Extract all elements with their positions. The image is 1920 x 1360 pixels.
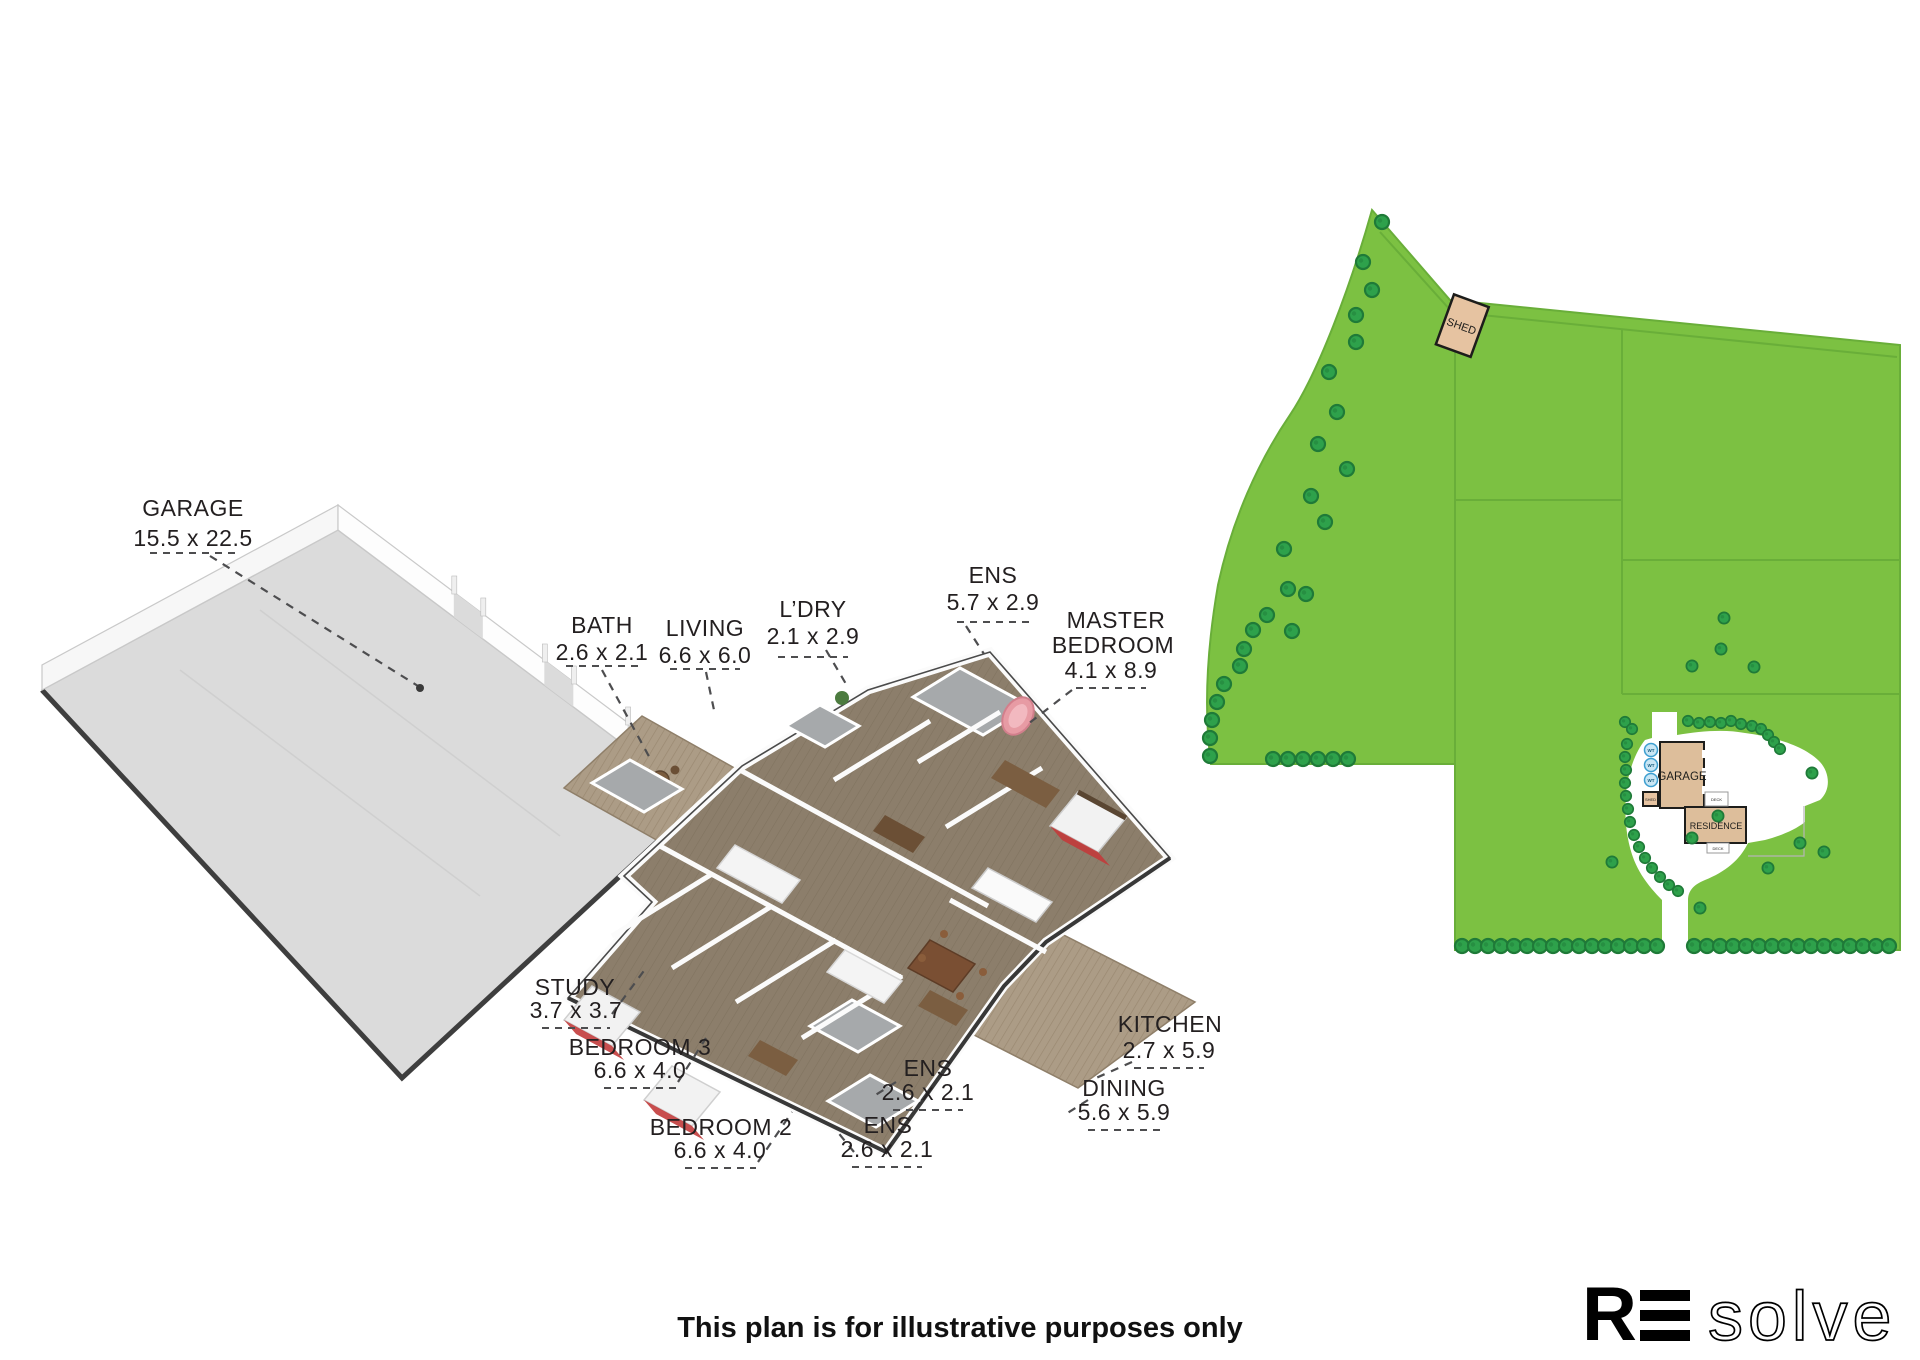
tree-icon [1705, 717, 1716, 728]
room-label-laundry-name: L’DRY [779, 596, 846, 622]
tree-icon [1277, 542, 1291, 556]
room-label-living-name: LIVING [666, 615, 744, 641]
tree-icon [1311, 752, 1325, 766]
tree-icon [1718, 612, 1729, 623]
tree-icon [1341, 752, 1355, 766]
room-label-bedroom2-dims: 6.6 x 4.0 [674, 1137, 767, 1163]
tree-icon [1794, 837, 1805, 848]
logo-e-bars-icon [1640, 1290, 1690, 1341]
tree-icon [1311, 437, 1325, 451]
tree-icon [1686, 660, 1697, 671]
tree-icon [1694, 718, 1705, 729]
room-label-master-name-1: MASTER [1067, 607, 1166, 633]
tree-icon [1775, 744, 1786, 755]
room-label-ens-master-name: ENS [969, 562, 1018, 588]
room-label-kitchen-dims: 2.7 x 5.9 [1123, 1037, 1216, 1063]
tree-icon [1318, 515, 1332, 529]
room-label-dining-dims: 5.6 x 5.9 [1078, 1099, 1171, 1125]
tree-icon [1281, 752, 1295, 766]
floor-plan-page: SHED WT WT WT GARAGE RESIDENCE SHED DECK… [0, 0, 1920, 1360]
tree-icon [1623, 804, 1634, 815]
tree-icon [1322, 365, 1336, 379]
tree-icon [1694, 902, 1705, 913]
room-label-garage-name: GARAGE [142, 495, 243, 521]
tree-icon [1340, 462, 1354, 476]
tree-icon [1736, 719, 1747, 730]
tree-icon [1621, 765, 1632, 776]
tree-icon [1299, 587, 1313, 601]
tree-icon [1281, 582, 1295, 596]
tree-icon [1296, 752, 1310, 766]
tree-icon [1304, 489, 1318, 503]
tree-icon [1748, 661, 1759, 672]
tree-icon [1627, 724, 1638, 735]
brand-logo: R solve [1582, 1282, 1912, 1348]
tree-icon [1365, 283, 1379, 297]
tree-icon [1673, 886, 1684, 897]
tree-icon [1606, 856, 1617, 867]
room-label-bedroom3-dims: 6.6 x 4.0 [594, 1057, 687, 1083]
tree-icon [1647, 863, 1658, 874]
tree-icon [1330, 405, 1344, 419]
tree-icon [1356, 255, 1370, 269]
tree-icon [1650, 939, 1664, 953]
brand-logo-graphic: R solve [1582, 1282, 1912, 1348]
tree-icon [1625, 817, 1636, 828]
tree-icon [1716, 718, 1727, 729]
tree-icon [1806, 767, 1817, 778]
room-label-ens-lower-name: ENS [864, 1112, 913, 1138]
tree-icon [1375, 215, 1389, 229]
room-label-laundry-dims: 2.1 x 2.9 [767, 623, 860, 649]
room-label-bath-dims: 2.6 x 2.1 [556, 639, 649, 665]
tree-icon [1683, 716, 1694, 727]
tree-icon [1715, 643, 1726, 654]
tree-icon [1203, 749, 1217, 763]
tree-icon [1655, 872, 1666, 883]
logo-word-solve: solve [1708, 1282, 1896, 1348]
tree-icon [1634, 842, 1645, 853]
tree-icon [1285, 624, 1299, 638]
logo-letter-r: R [1582, 1282, 1637, 1348]
tree-icon [1266, 752, 1280, 766]
room-label-study-dims: 3.7 x 3.7 [530, 997, 623, 1023]
room-label-dining-name: DINING [1082, 1075, 1166, 1101]
room-label-ens-master-dims: 5.7 x 2.9 [947, 589, 1040, 615]
tree-icon [1762, 862, 1773, 873]
room-label-living-dims: 6.6 x 6.0 [659, 642, 752, 668]
room-label-bath-name: BATH [571, 612, 633, 638]
room-label-ens-upper-dims: 2.6 x 2.1 [882, 1079, 975, 1105]
plan-canvas: SHED WT WT WT GARAGE RESIDENCE SHED DECK… [0, 0, 1920, 1360]
site-garage-label: GARAGE [1657, 771, 1707, 783]
tree-icon [1210, 695, 1224, 709]
tree-icon [1205, 713, 1219, 727]
room-label-master-name-2: BEDROOM [1052, 632, 1174, 658]
site-deck-upper-label: DECK [1711, 797, 1722, 802]
tree-icon [1620, 778, 1631, 789]
tree-icon [1349, 308, 1363, 322]
water-tank-label: WT [1648, 748, 1655, 753]
site-residence-label: RESIDENCE [1690, 821, 1743, 831]
tree-icon [1237, 642, 1251, 656]
tree-icon [1349, 335, 1363, 349]
tree-icon [1712, 810, 1723, 821]
water-tank-label: WT [1648, 763, 1655, 768]
room-label-master-dims: 4.1 x 8.9 [1065, 657, 1158, 683]
tree-icon [1620, 752, 1631, 763]
tree-icon [1622, 739, 1633, 750]
tree-icon [1203, 731, 1217, 745]
tree-icon [1818, 846, 1829, 857]
room-label-ens-upper-name: ENS [904, 1055, 953, 1081]
tree-icon [1629, 830, 1640, 841]
tree-icon [1260, 608, 1274, 622]
site-deck-lower-label: DECK [1712, 846, 1723, 851]
room-label-garage-dims: 15.5 x 22.5 [133, 525, 252, 551]
site-plan: SHED WT WT WT GARAGE RESIDENCE SHED DECK… [1203, 210, 1900, 953]
tree-icon [1246, 623, 1260, 637]
site-shed-small-label: SHED [1645, 797, 1656, 802]
tree-icon [1686, 832, 1697, 843]
tree-icon [1640, 853, 1651, 864]
tree-icon [1726, 716, 1737, 727]
plant [835, 691, 849, 705]
tree-icon [1621, 791, 1632, 802]
tree-icon [1217, 677, 1231, 691]
tree-icon [1326, 752, 1340, 766]
room-label-kitchen-name: KITCHEN [1118, 1011, 1222, 1037]
site-water-tanks: WT WT WT [1645, 744, 1658, 787]
room-label-ens-lower-dims: 2.6 x 2.1 [841, 1136, 934, 1162]
tree-icon [1233, 659, 1247, 673]
water-tank-label: WT [1648, 778, 1655, 783]
tree-icon [1882, 939, 1896, 953]
